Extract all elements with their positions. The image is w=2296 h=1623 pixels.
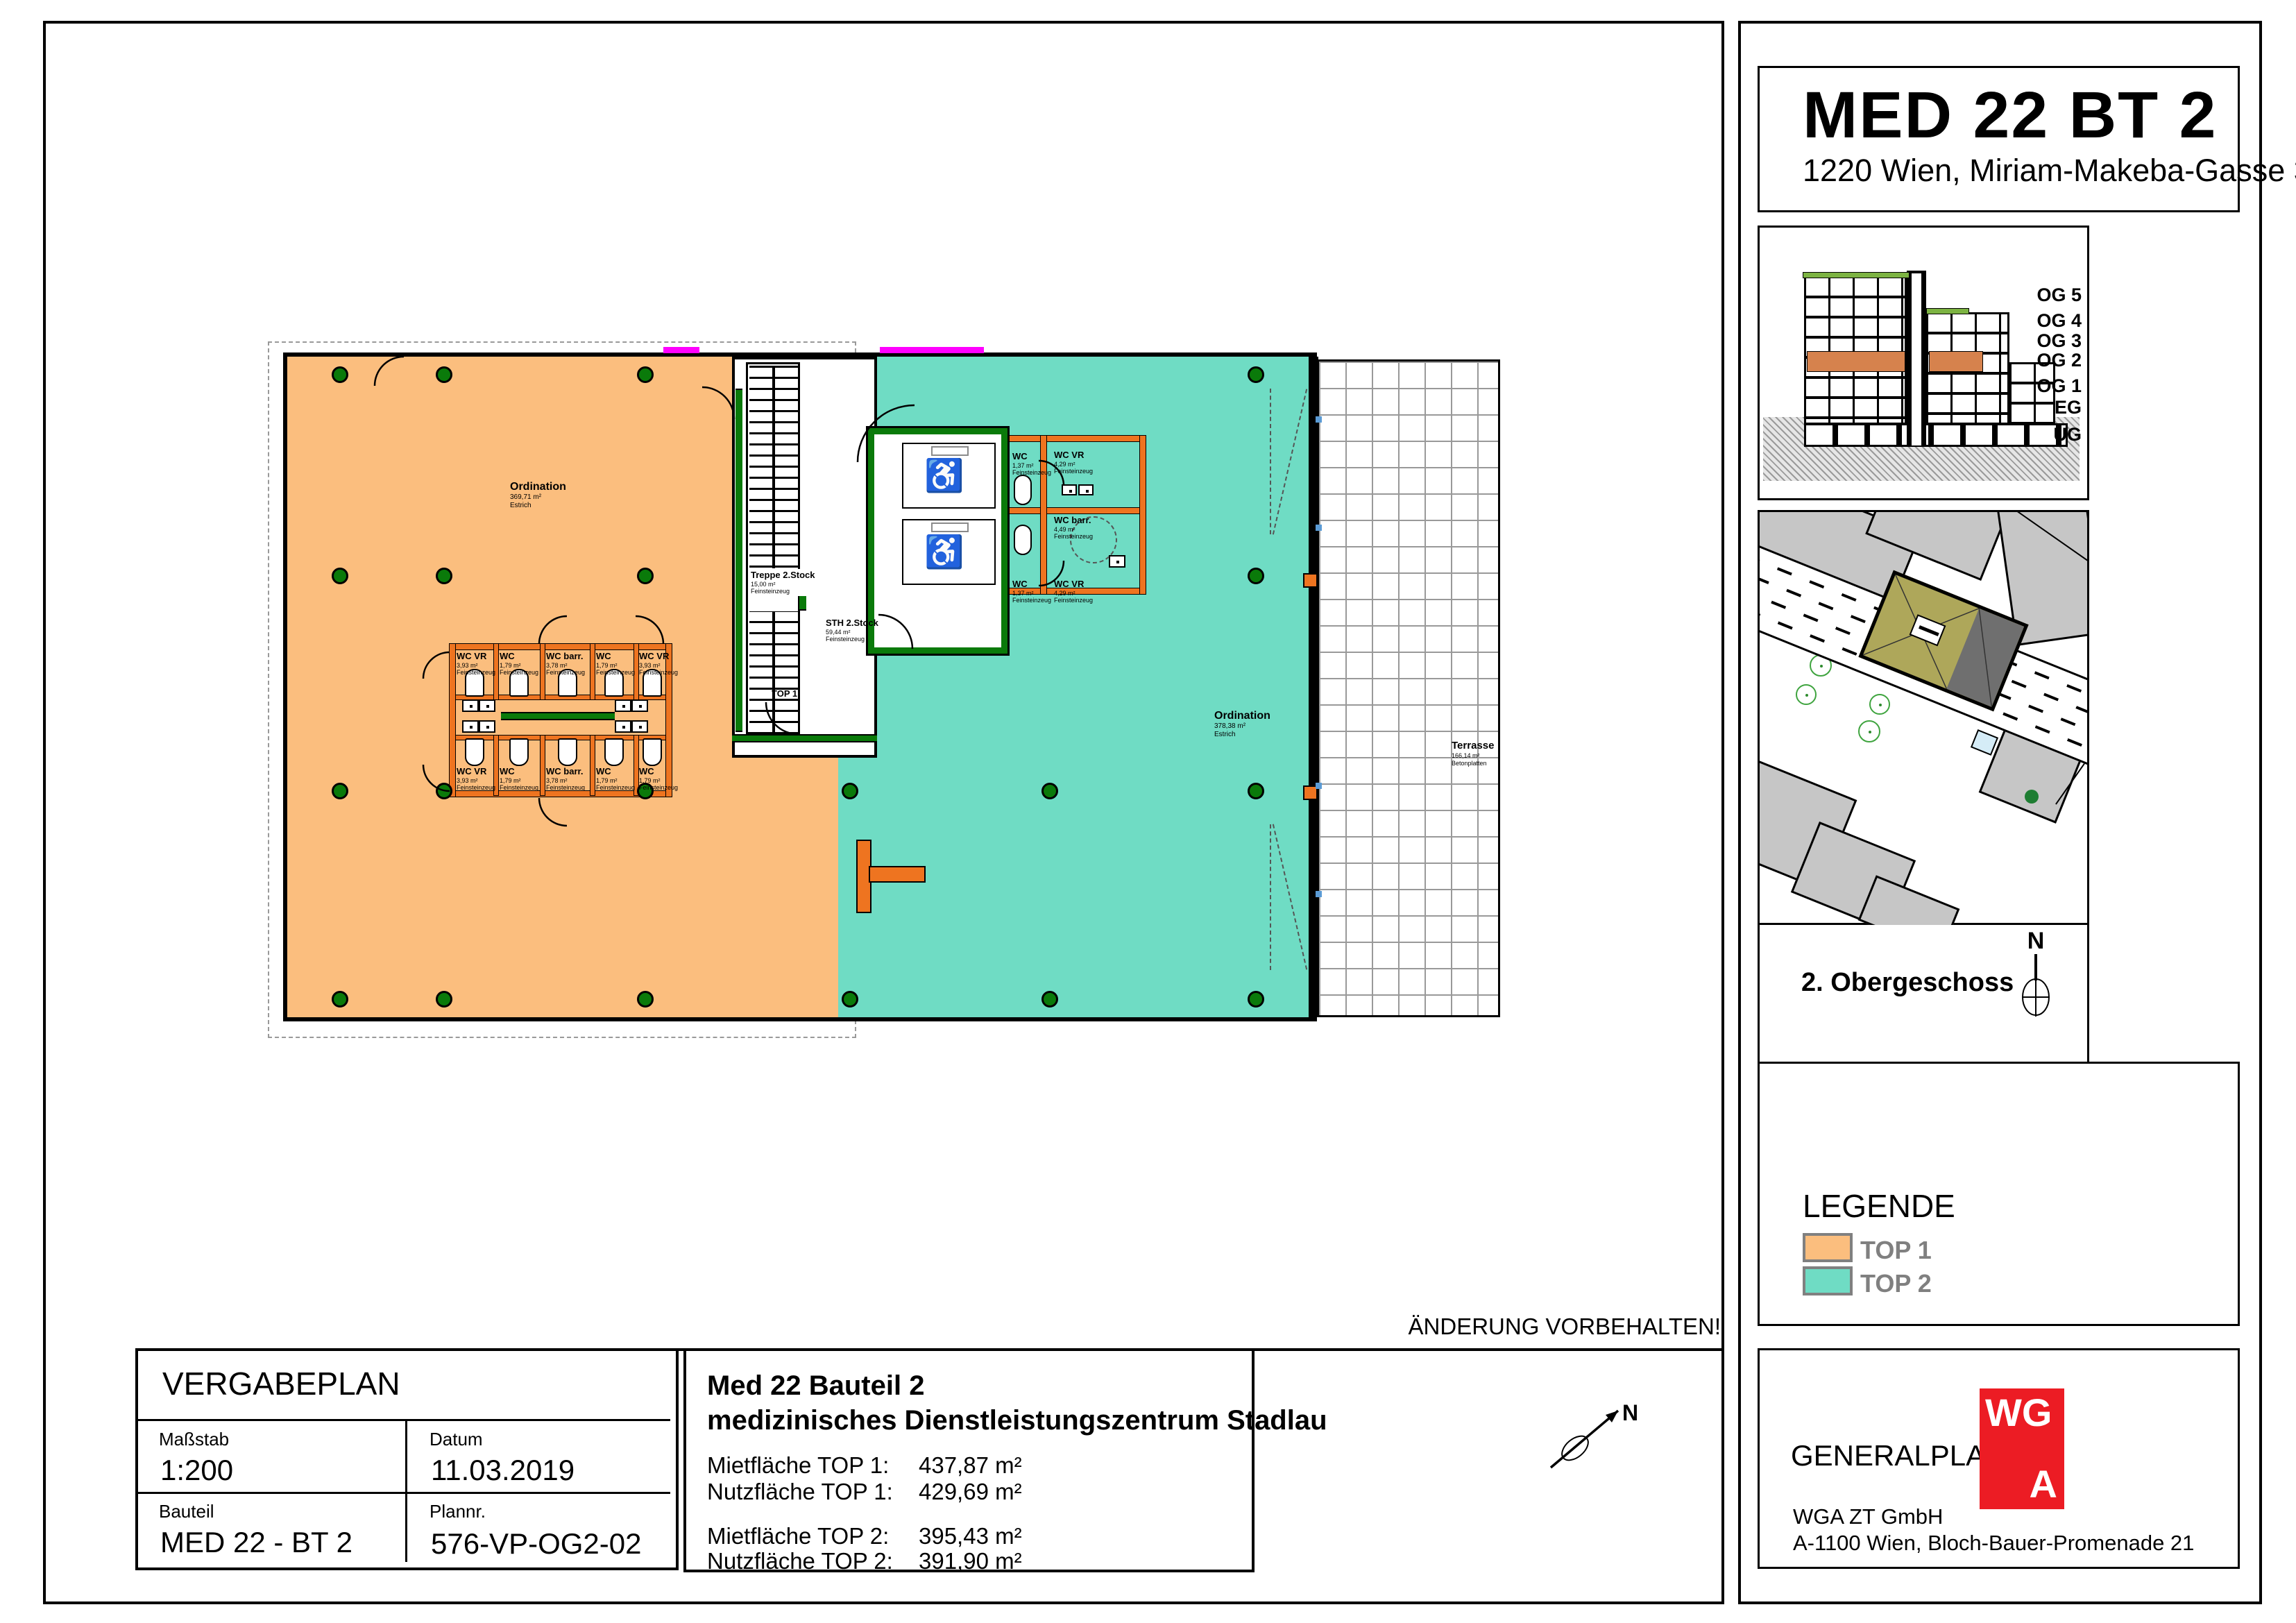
site-map (1758, 510, 2089, 927)
panel-title: MED 22 BT 2 (1803, 78, 2217, 153)
map-building (1858, 875, 1960, 927)
room-label-wc: WC1,79 m²Feinsteinzeug (639, 766, 678, 792)
wall-marker-blue (1316, 525, 1322, 531)
room-label-wc: WC barr.3,78 m²Feinsteinzeug (546, 651, 585, 677)
north-arrow-icon: N (1540, 1398, 1651, 1481)
room-label-wc: WC barr.3,78 m²Feinsteinzeug (546, 766, 585, 792)
area-row-label: Mietfläche TOP 1: (707, 1452, 889, 1479)
floor-label: OG 1 (1998, 375, 2082, 397)
project-subtitle: medizinisches Dienstleistungszentrum Sta… (707, 1405, 1327, 1436)
floor-label: OG 3 (1998, 330, 2082, 352)
door-arcs (264, 340, 1513, 1034)
room-label-wc: WC1,37 m²Feinsteinzeug (1012, 579, 1051, 604)
map-subject-roof-lines (1863, 575, 2024, 707)
divider (405, 1419, 407, 1562)
legend-title: LEGENDE (1803, 1187, 1955, 1225)
svg-text:N: N (2027, 928, 2045, 954)
svg-text:N: N (1622, 1400, 1638, 1425)
area-row-value: 429,69 m² (919, 1479, 1022, 1505)
area-row-label: Nutzfläche TOP 2: (707, 1548, 893, 1574)
room-label-ordination-top2: Ordination378,38 m²Estrich (1214, 709, 1270, 739)
panel-floor-box: 2. Obergeschoss N (1758, 923, 2089, 1066)
room-label-wc: WC VR4,29 m²Feinsteinzeug (1054, 450, 1093, 475)
room-label-treppe: Treppe 2.Stock15,00 m²Feinsteinzeug (749, 569, 816, 596)
wga-logo-text-top: WG (1985, 1390, 2052, 1435)
massstab-value: 1:200 (160, 1454, 233, 1487)
floor-label: UG (1998, 424, 2082, 445)
plannr-value: 576-VP-OG2-02 (431, 1527, 641, 1561)
room-label-wc: WC1,37 m²Feinsteinzeug (1012, 451, 1051, 477)
datum-label: Datum (430, 1429, 483, 1450)
room-label-ordination-top1: Ordination369,71 m²Estrich (510, 480, 566, 510)
plan-note: ÄNDERUNG VORBEHALTEN! (1360, 1314, 1721, 1340)
generalplaner-box: GENERALPLANER: WG A WGA ZT GmbH A-1100 W… (1758, 1348, 2240, 1569)
room-label-terrasse: Terrasse166,14 m²Betonplatten (1452, 740, 1494, 767)
plannr-label: Plannr. (430, 1501, 486, 1522)
section-og2-highlight (1807, 351, 1905, 372)
panel-title-box: MED 22 BT 2 1220 Wien, Miriam-Makeba-Gas… (1758, 66, 2240, 212)
wall-marker-blue (1316, 891, 1322, 897)
area-row-label: Nutzfläche TOP 1: (707, 1479, 893, 1505)
datum-value: 11.03.2019 (431, 1454, 575, 1487)
room-label-wc: WC1,79 m²Feinsteinzeug (596, 766, 635, 792)
room-label-wc: WC VR4,29 m²Feinsteinzeug (1054, 579, 1093, 604)
divider (138, 1492, 670, 1494)
wga-logo-text-bottom: A (2030, 1461, 2057, 1506)
wall-marker-orange (1303, 573, 1318, 588)
bauteil-label: Bauteil (159, 1501, 214, 1522)
bauteil-value: MED 22 - BT 2 (160, 1526, 352, 1559)
panel-address: 1220 Wien, Miriam-Makeba-Gasse 3 (1803, 153, 2296, 189)
area-row-value: 395,43 m² (919, 1523, 1022, 1549)
wall-marker-blue (1316, 783, 1322, 789)
generalplaner-address: A-1100 Wien, Bloch-Bauer-Promenade 21 (1793, 1531, 2194, 1556)
section-elevator-tower (1907, 271, 1926, 445)
floor-label: OG 2 (1998, 350, 2082, 371)
area-row-label: Mietfläche TOP 2: (707, 1523, 889, 1549)
floor-label: OG 4 (1998, 310, 2082, 332)
floor-label: EG (1998, 397, 2082, 418)
room-label-wc: WC1,79 m²Feinsteinzeug (596, 651, 635, 677)
tree-icon (1796, 684, 1817, 705)
tree-icon (1869, 694, 1890, 715)
legend-box: LEGENDE TOP 1 TOP 2 (1758, 1062, 2240, 1326)
legend-label-top1: TOP 1 (1860, 1236, 1932, 1265)
legend-label-top2: TOP 2 (1860, 1269, 1932, 1298)
floor-label: OG 5 (1998, 284, 2082, 306)
legend-swatch-top2 (1803, 1266, 1853, 1295)
top1-door-label: TOP 1 (772, 688, 797, 699)
titleblock: VERGABEPLAN Maßstab 1:200 Datum 11.03.20… (135, 1348, 679, 1570)
titleblock-header: VERGABEPLAN (162, 1365, 400, 1402)
wga-logo: WG A (1980, 1388, 2064, 1509)
plan-sheet: Treppe 2.Stock15,00 m²Feinsteinzeug STH … (0, 0, 2296, 1623)
massstab-label: Maßstab (159, 1429, 229, 1450)
room-label-wc: WC barr.4,49 m²Feinsteinzeug (1054, 515, 1093, 541)
area-row-value: 437,87 m² (919, 1452, 1022, 1479)
room-label-wc: WC VR3,93 m²Feinsteinzeug (639, 651, 678, 677)
tree-icon (2025, 790, 2039, 804)
room-label-sth: STH 2.Stock59,44 m²Feinsteinzeug (826, 618, 878, 643)
section-building-left (1804, 276, 1907, 425)
project-title: Med 22 Bauteil 2 (707, 1370, 924, 1402)
north-compass-icon: N (2009, 926, 2065, 1023)
wall-marker-blue (1316, 416, 1322, 423)
divider (138, 1419, 670, 1421)
tree-icon (1858, 720, 1880, 742)
section-og2-highlight (1929, 351, 1983, 372)
room-label-wc: WC VR3,93 m²Feinsteinzeug (457, 766, 495, 792)
room-label-wc: WC1,79 m²Feinsteinzeug (500, 766, 538, 792)
room-label-wc: WC1,79 m²Feinsteinzeug (500, 651, 538, 677)
section-green-roof (1926, 308, 1969, 314)
legend-swatch-top1 (1803, 1233, 1853, 1262)
project-info-block: Med 22 Bauteil 2 medizinisches Dienstlei… (683, 1348, 1255, 1572)
section-green-roof (1803, 272, 1910, 278)
generalplaner-company: WGA ZT GmbH (1793, 1504, 1943, 1529)
room-label-wc: WC VR3,93 m²Feinsteinzeug (457, 651, 495, 677)
area-row-value: 391,90 m² (919, 1548, 1022, 1574)
panel-floor-label: 2. Obergeschoss (1801, 968, 2014, 998)
